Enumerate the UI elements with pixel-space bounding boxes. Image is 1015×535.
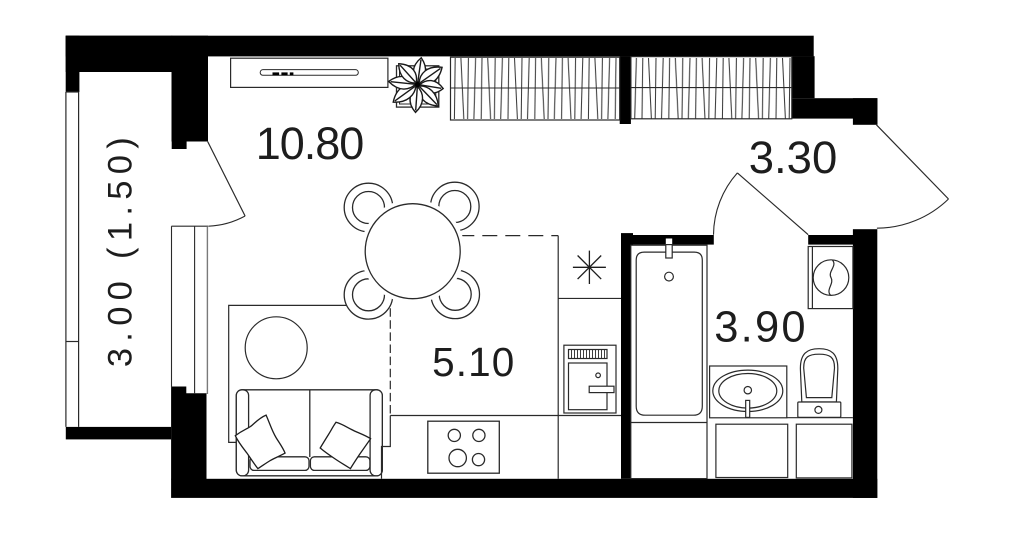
svg-text:3.90: 3.90 xyxy=(714,303,807,351)
svg-text:5.10: 5.10 xyxy=(432,339,515,385)
svg-text:3.00 (1.50): 3.00 (1.50) xyxy=(102,131,140,367)
svg-text:3.30: 3.30 xyxy=(749,132,838,183)
svg-text:10.80: 10.80 xyxy=(256,118,364,169)
